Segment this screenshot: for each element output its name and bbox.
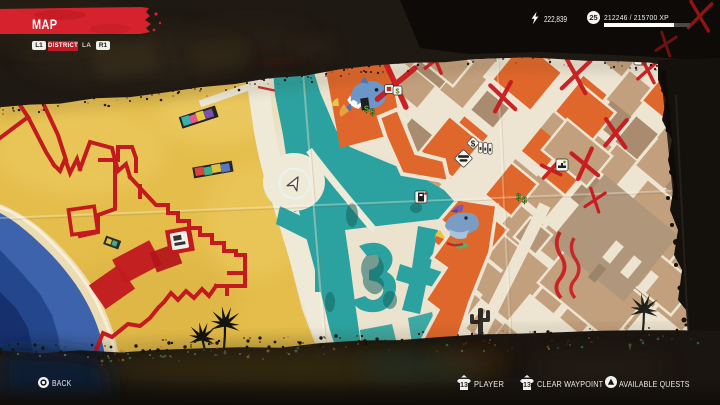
svg-text:13: 13 bbox=[460, 382, 468, 389]
svg-text:$: $ bbox=[471, 140, 476, 149]
svg-text:13: 13 bbox=[523, 382, 531, 389]
svg-text:$: $ bbox=[522, 195, 527, 205]
svg-text:$: $ bbox=[370, 107, 375, 117]
svg-text:$: $ bbox=[364, 104, 369, 114]
svg-text:$: $ bbox=[396, 89, 400, 96]
svg-text:$: $ bbox=[516, 192, 521, 202]
